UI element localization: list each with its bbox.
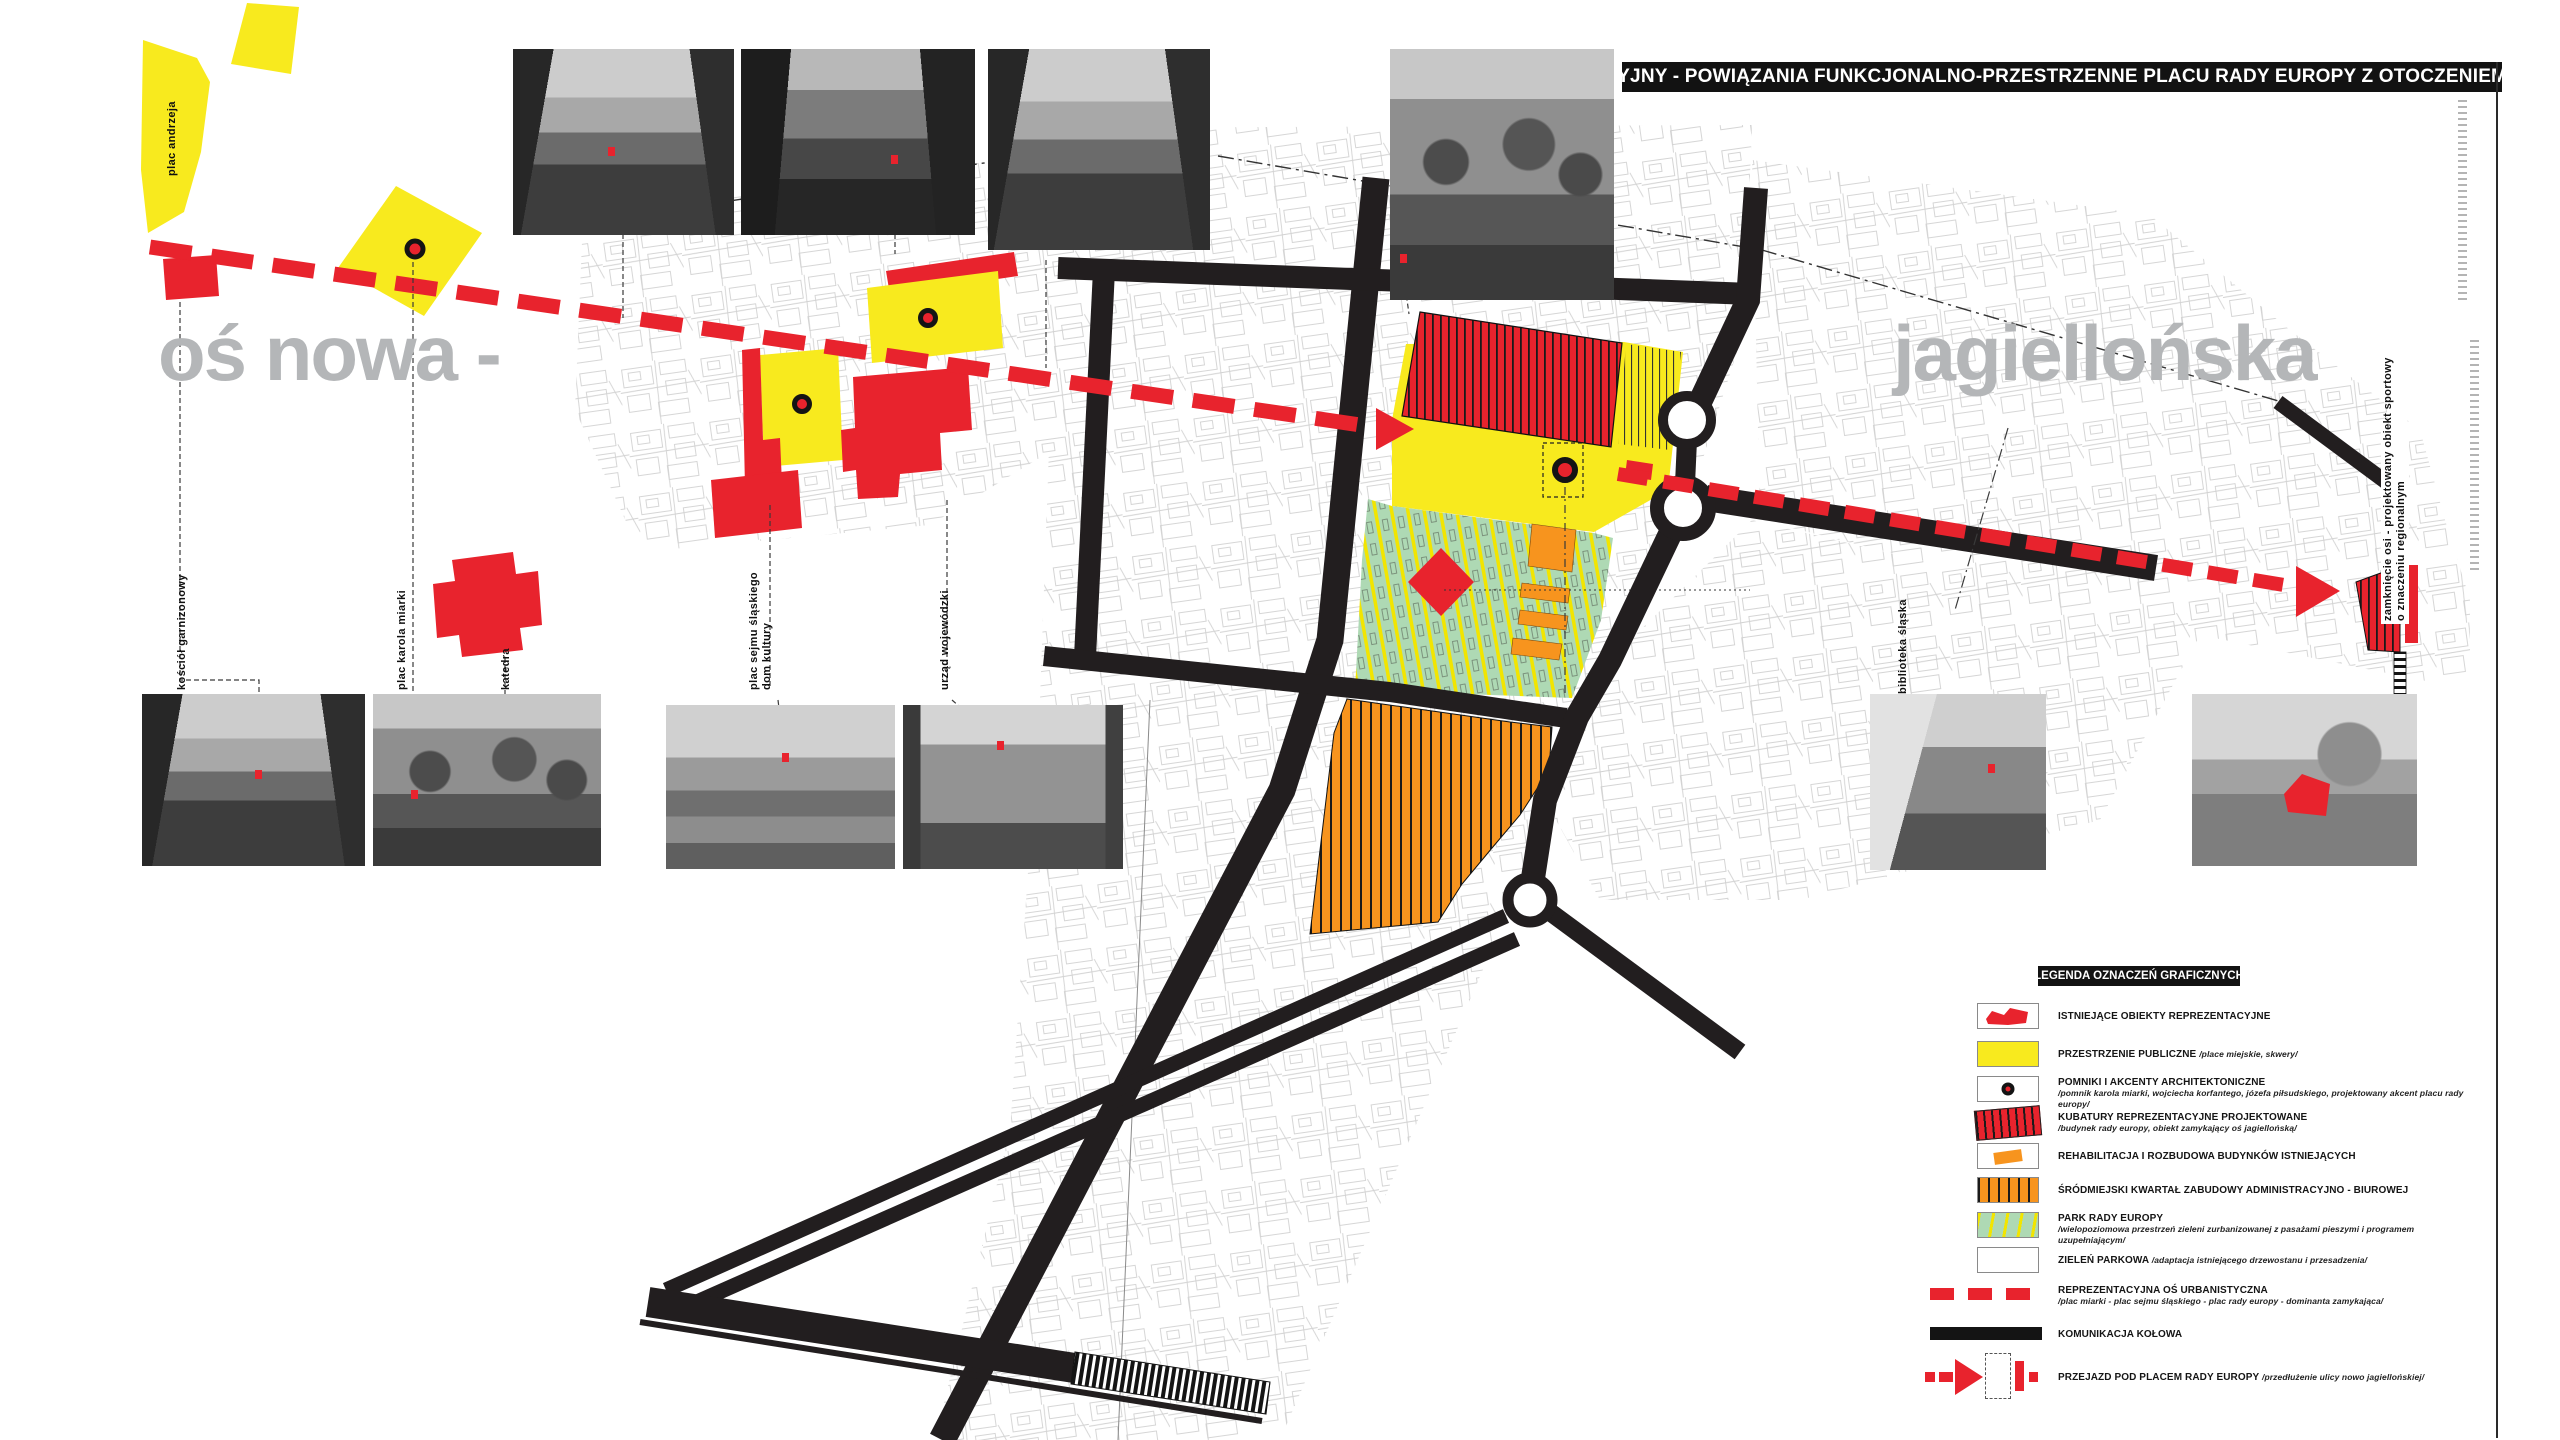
- label-biblioteka-slaska: biblioteka śląska: [1897, 606, 1910, 694]
- red-blob-icon: [1978, 1004, 2038, 1028]
- label-plac-sejmu: plac sejmu śląskiego dom kultury: [748, 556, 774, 690]
- red-dot-marker-icon: [255, 770, 262, 779]
- legend-item-text: PARK RADY EUROPY: [2058, 1213, 2163, 1224]
- margin-notes: [2470, 340, 2479, 570]
- legend-item-sub: /place miejskie, skwery/: [2199, 1049, 2297, 1059]
- legend-item-sub: /pomnik karola miarki, wojciecha korfant…: [2058, 1088, 2463, 1109]
- legend-label: KUBATURY REPREZENTACYJNE PROJEKTOWANE/bu…: [2058, 1112, 2478, 1134]
- legend-swatch-axis: [1930, 1288, 2042, 1300]
- legend-item-text: REHABILITACJA I ROZBUDOWA BUDYNKÓW ISTNI…: [2058, 1151, 2356, 1162]
- legend-label: ZIELEŃ PARKOWA /adaptacja istniejącego d…: [2058, 1255, 2478, 1266]
- legend-item-sub: /wielopoziomowa przestrzeń zieleni zurba…: [2058, 1224, 2414, 1245]
- legend-swatch-park-green: [1977, 1247, 2039, 1273]
- sheet-edge-rule: [2496, 62, 2498, 1438]
- legend-item-sub: /adaptacja istniejącego drzewostanu i pr…: [2152, 1255, 2367, 1265]
- legend-swatch-rehabilitation: [1977, 1143, 2039, 1169]
- orange-building-icon: [1993, 1149, 2022, 1165]
- legend-item-text: ŚRÓDMIEJSKI KWARTAŁ ZABUDOWY ADMINISTRAC…: [2058, 1185, 2408, 1196]
- legend-header: LEGENDA OZNACZEŃ GRAFICZNYCH: [2038, 966, 2240, 986]
- red-dot-marker-icon: [997, 741, 1004, 750]
- photo-site-zamkniecie: [2192, 694, 2417, 866]
- label-katedra: katedra: [500, 626, 513, 690]
- plan-sheet: PLAN SYTUACYJNY - POWIĄZANIA FUNKCJONALN…: [0, 0, 2560, 1440]
- legend-swatch-park: [1977, 1212, 2039, 1238]
- label-urzad-wojewodzki: urząd wojewódzki: [939, 582, 952, 690]
- red-dot-marker-icon: [1988, 764, 1995, 773]
- dash-icon: [1939, 1372, 1953, 1382]
- legend-label: REPREZENTACYJNA OŚ URBANISTYCZNA/plac mi…: [2058, 1285, 2478, 1307]
- roundabout-small: [1663, 396, 1711, 444]
- legend-item-text: ZIELEŃ PARKOWA: [2058, 1255, 2149, 1266]
- legend-swatch-office-quarter: [1977, 1177, 2039, 1203]
- axis-label-right: jagiellońska: [1893, 308, 2316, 399]
- red-block-building: [711, 470, 802, 538]
- margin-notes: [2458, 100, 2467, 300]
- legend-label: POMNIKI I AKCENTY ARCHITEKTONICZNE/pomni…: [2058, 1077, 2478, 1110]
- photo-street-north-1: [513, 49, 734, 235]
- red-dot-marker-icon: [608, 147, 615, 156]
- arrow-icon: [1955, 1359, 1983, 1395]
- legend-item-sub: /budynek rady europy, obiekt zamykający …: [2058, 1123, 2297, 1133]
- legend-label: PARK RADY EUROPY/wielopoziomowa przestrz…: [2058, 1213, 2478, 1246]
- legend-item-text: PRZEJAZD POD PLACEM RADY EUROPY: [2058, 1372, 2259, 1383]
- monument-icon: [921, 311, 936, 326]
- monument-icon: [795, 397, 810, 412]
- public-space-small: [231, 3, 299, 74]
- label-kosciol-garnizonowy: kościół garnizonowy: [176, 570, 189, 690]
- legend-label: ŚRÓDMIEJSKI KWARTAŁ ZABUDOWY ADMINISTRAC…: [2058, 1185, 2478, 1196]
- legend-item-text: POMNIKI I AKCENTY ARCHITEKTONICZNE: [2058, 1077, 2265, 1088]
- dash-icon: [2029, 1372, 2038, 1382]
- legend-swatch-existing-objects: [1977, 1003, 2039, 1029]
- photo-park-miarki: [373, 694, 601, 866]
- legend-label: PRZEJAZD POD PLACEM RADY EUROPY /przedłu…: [2058, 1372, 2478, 1383]
- axis-label-left: oś nowa -: [158, 308, 500, 399]
- road-southeast: [1550, 912, 1740, 1052]
- legend-label: KOMUNIKACJA KOŁOWA: [2058, 1329, 2478, 1340]
- legend-item-text: KUBATURY REPREZENTACYJNE PROJEKTOWANE: [2058, 1112, 2307, 1123]
- photo-pond-dom-kultury: [666, 705, 895, 869]
- legend-item-sub: /przedłużenie ulicy nowo jagiellońskiej/: [2262, 1372, 2424, 1382]
- legend-swatch-monuments: [1977, 1076, 2039, 1102]
- label-zamkniecie-osi: zamknięcie osi - projektowany obiekt spo…: [2381, 426, 2409, 624]
- dash-icon: [1925, 1372, 1935, 1382]
- legend-swatch-public-spaces: [1977, 1041, 2039, 1067]
- photo-street-north-2: [741, 49, 975, 235]
- photo-park-north: [1390, 49, 1614, 300]
- legend-item-text: KOMUNIKACJA KOŁOWA: [2058, 1329, 2182, 1340]
- legend-item-text: PRZESTRZENIE PUBLICZNE: [2058, 1049, 2196, 1060]
- red-dot-marker-icon: [891, 155, 898, 164]
- red-massing-overlay: [2282, 772, 2342, 822]
- photo-urzad-wojewodzki: [903, 705, 1123, 869]
- legend-item-text: REPREZENTACYJNA OŚ URBANISTYCZNA: [2058, 1285, 2268, 1296]
- dashed-rect-icon: [1985, 1353, 2011, 1399]
- legend-label: ISTNIEJĄCE OBIEKTY REPREZENTACYJNE: [2058, 1011, 2478, 1022]
- photo-street-church: [142, 694, 365, 866]
- legend-item-text: ISTNIEJĄCE OBIEKTY REPREZENTACYJNE: [2058, 1011, 2271, 1022]
- red-dot-marker-icon: [411, 790, 418, 799]
- legend-swatch-projected-buildings: [1974, 1105, 2042, 1141]
- katedra-building: [433, 552, 542, 657]
- label-plac-andrzeja: plac andrzeja: [166, 92, 179, 176]
- photo-street-north-3: [988, 49, 1210, 250]
- legend-label: PRZESTRZENIE PUBLICZNE /place miejskie, …: [2058, 1049, 2478, 1060]
- red-bar-icon: [2015, 1361, 2024, 1391]
- legend-label: REHABILITACJA I ROZBUDOWA BUDYNKÓW ISTNI…: [2058, 1151, 2478, 1162]
- monument-karola-miarki-icon: [407, 241, 423, 257]
- ladder-strip: [2394, 652, 2406, 696]
- legend-swatch-roads: [1930, 1327, 2042, 1340]
- red-dot-marker-icon: [1400, 254, 1407, 263]
- accent-monument-icon: [1555, 460, 1575, 480]
- legend-item-sub: /plac miarki - plac sejmu śląskiego - pl…: [2058, 1296, 2383, 1306]
- title-bar: PLAN SYTUACYJNY - POWIĄZANIA FUNKCJONALN…: [1622, 62, 2502, 92]
- roundabout-south: [1508, 878, 1552, 922]
- photo-biblioteka-slaska: [1870, 694, 2046, 870]
- monument-dot-icon: [2002, 1083, 2015, 1096]
- red-dot-marker-icon: [782, 753, 789, 762]
- label-plac-karola-miarki: plac karola miarki: [396, 578, 409, 690]
- legend-swatch-underpass: [1925, 1352, 2045, 1402]
